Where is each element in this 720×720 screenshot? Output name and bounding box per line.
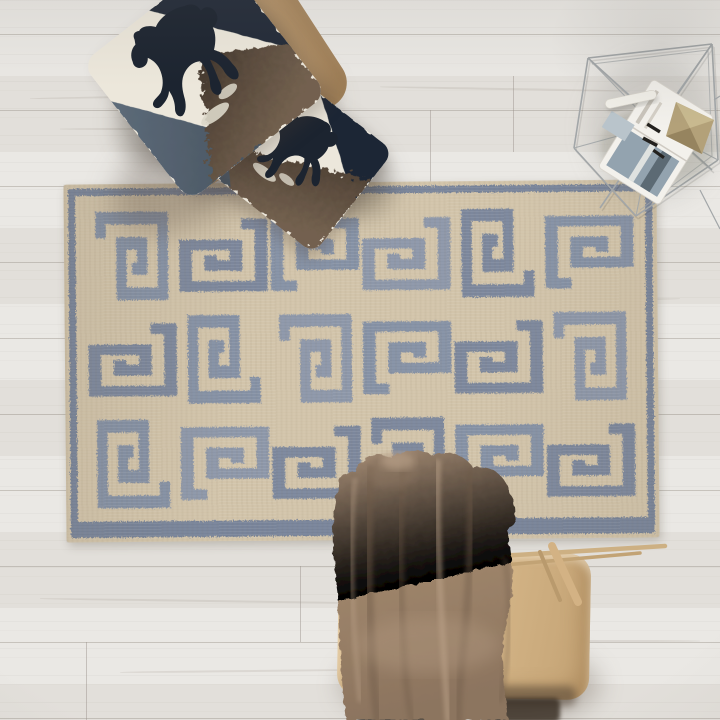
wire-geometric-side-table bbox=[560, 15, 720, 230]
plank-seam-vertical bbox=[86, 642, 87, 720]
rug-meander-motif bbox=[185, 224, 261, 287]
plank-seam-vertical bbox=[513, 76, 514, 152]
rug-meander-motif bbox=[193, 321, 256, 397]
magazine-group bbox=[583, 69, 716, 205]
blanket-knot-highlight bbox=[381, 452, 415, 470]
rug-meander-motif bbox=[284, 320, 347, 396]
rug-meander-motif bbox=[559, 318, 622, 394]
rug-meander-motif bbox=[551, 221, 627, 284]
rug-meander-motif bbox=[95, 329, 171, 392]
rug-meander-motif bbox=[466, 215, 529, 291]
rug-meander-motif bbox=[187, 432, 263, 495]
plank-seam-vertical bbox=[300, 566, 301, 642]
blanket-roll-highlight bbox=[356, 617, 500, 673]
rug-meander-motif bbox=[102, 426, 165, 502]
room-scene bbox=[0, 0, 720, 720]
plank-seam-vertical bbox=[430, 110, 431, 186]
rug-meander-motif bbox=[368, 222, 444, 285]
rug-meander-motif bbox=[369, 326, 445, 389]
taupe-throw-blanket bbox=[315, 435, 565, 720]
rug-meander-motif bbox=[461, 325, 537, 388]
